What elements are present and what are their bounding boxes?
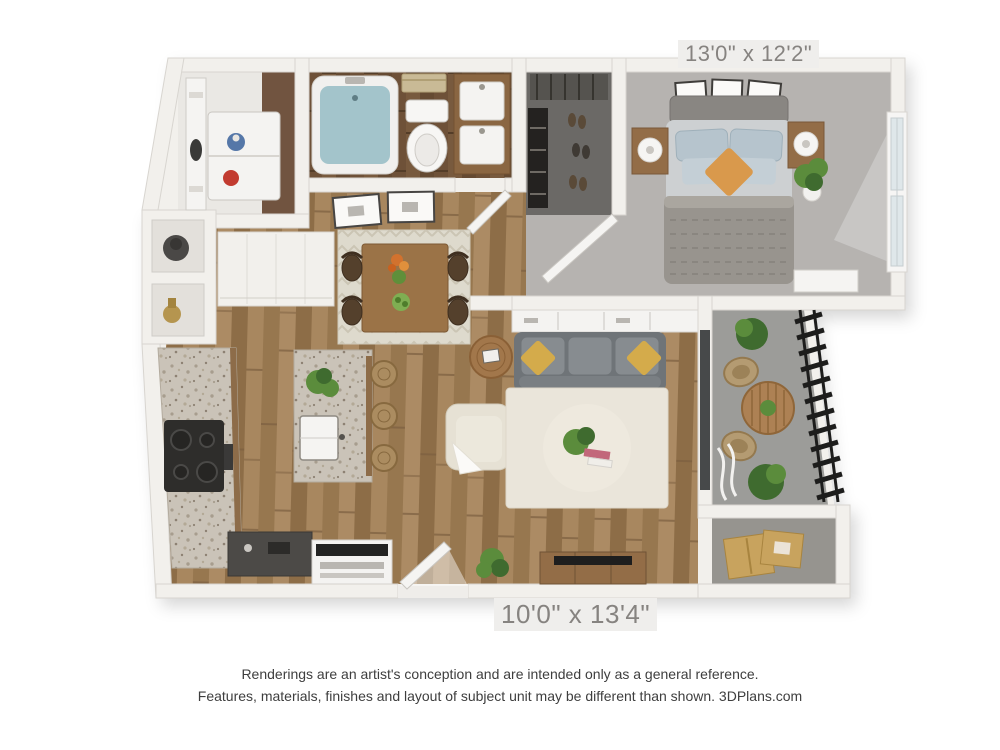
bed: [664, 96, 794, 284]
tub-drain: [352, 95, 358, 101]
floor-plan-rendering: [0, 0, 1000, 750]
wall-hall-living-stub: [470, 296, 512, 310]
towel-rack: [402, 74, 446, 92]
balcony-sliding-door-glass: [700, 330, 710, 490]
living-room-dimensions-label: 10'0" x 13'4": [494, 598, 657, 631]
kitchen-island: [294, 350, 397, 482]
oven-handle: [224, 444, 233, 470]
area-rug: [506, 388, 668, 508]
wall-closet-bedroom: [612, 58, 626, 215]
island-sink: [300, 416, 345, 460]
bedroom-dresser: [794, 270, 858, 292]
sink-faucet-bottom: [479, 128, 485, 134]
kitchen-counter-bottom: [228, 532, 392, 584]
laundry-basket-red: [223, 170, 239, 186]
cooktop: [164, 420, 233, 492]
tub-faucet: [345, 77, 365, 84]
wall-bottom-living: [468, 584, 712, 598]
floor-plan-page: 13'0" x 12'2" 10'0" x 13'4" Renderings a…: [0, 0, 1000, 750]
laundry-shelf-item: [190, 139, 202, 161]
hanging-clothes: [530, 74, 608, 100]
side-table: [470, 336, 512, 378]
armchair: [446, 404, 510, 474]
toilet: [406, 100, 448, 172]
washer-dryer: [208, 112, 280, 200]
bedroom-dimensions-label: 13'0" x 12'2": [678, 40, 819, 68]
wall-storage-bottom: [698, 584, 850, 598]
television: [554, 556, 632, 565]
tv-console: [540, 552, 646, 584]
kitchen-upper-cabinets: [218, 232, 334, 306]
disclaimer-line-2: Features, materials, finishes and layout…: [0, 685, 1000, 707]
bar-stools: [371, 361, 397, 471]
island-faucet: [339, 434, 345, 440]
table-picture-frame: [482, 349, 500, 363]
disclaimer-line-1: Renderings are an artist's conception an…: [0, 663, 1000, 685]
sink-faucet-top: [479, 84, 485, 90]
wall-laundry-bath: [295, 58, 309, 228]
balcony-table-plant: [760, 400, 776, 416]
dining-table: [362, 244, 448, 332]
sofa-console: [512, 310, 698, 332]
disclaimer: Renderings are an artist's conception an…: [0, 663, 1000, 707]
niche-shelving-block: [142, 210, 216, 344]
nightstand-left: [632, 128, 668, 174]
dining-area: [338, 230, 470, 344]
kitchen-range: [312, 540, 392, 584]
bathtub: [312, 76, 398, 174]
wall-storage-top: [698, 505, 850, 518]
wall-bottom-kitchen: [156, 584, 398, 598]
bathroom-vanity: [454, 74, 510, 174]
wall-bathroom-bottom: [309, 178, 455, 192]
balcony-table: [742, 382, 794, 434]
sofa: [514, 332, 666, 392]
wall-bath-closet: [512, 58, 526, 192]
decor-pot: [163, 235, 189, 261]
